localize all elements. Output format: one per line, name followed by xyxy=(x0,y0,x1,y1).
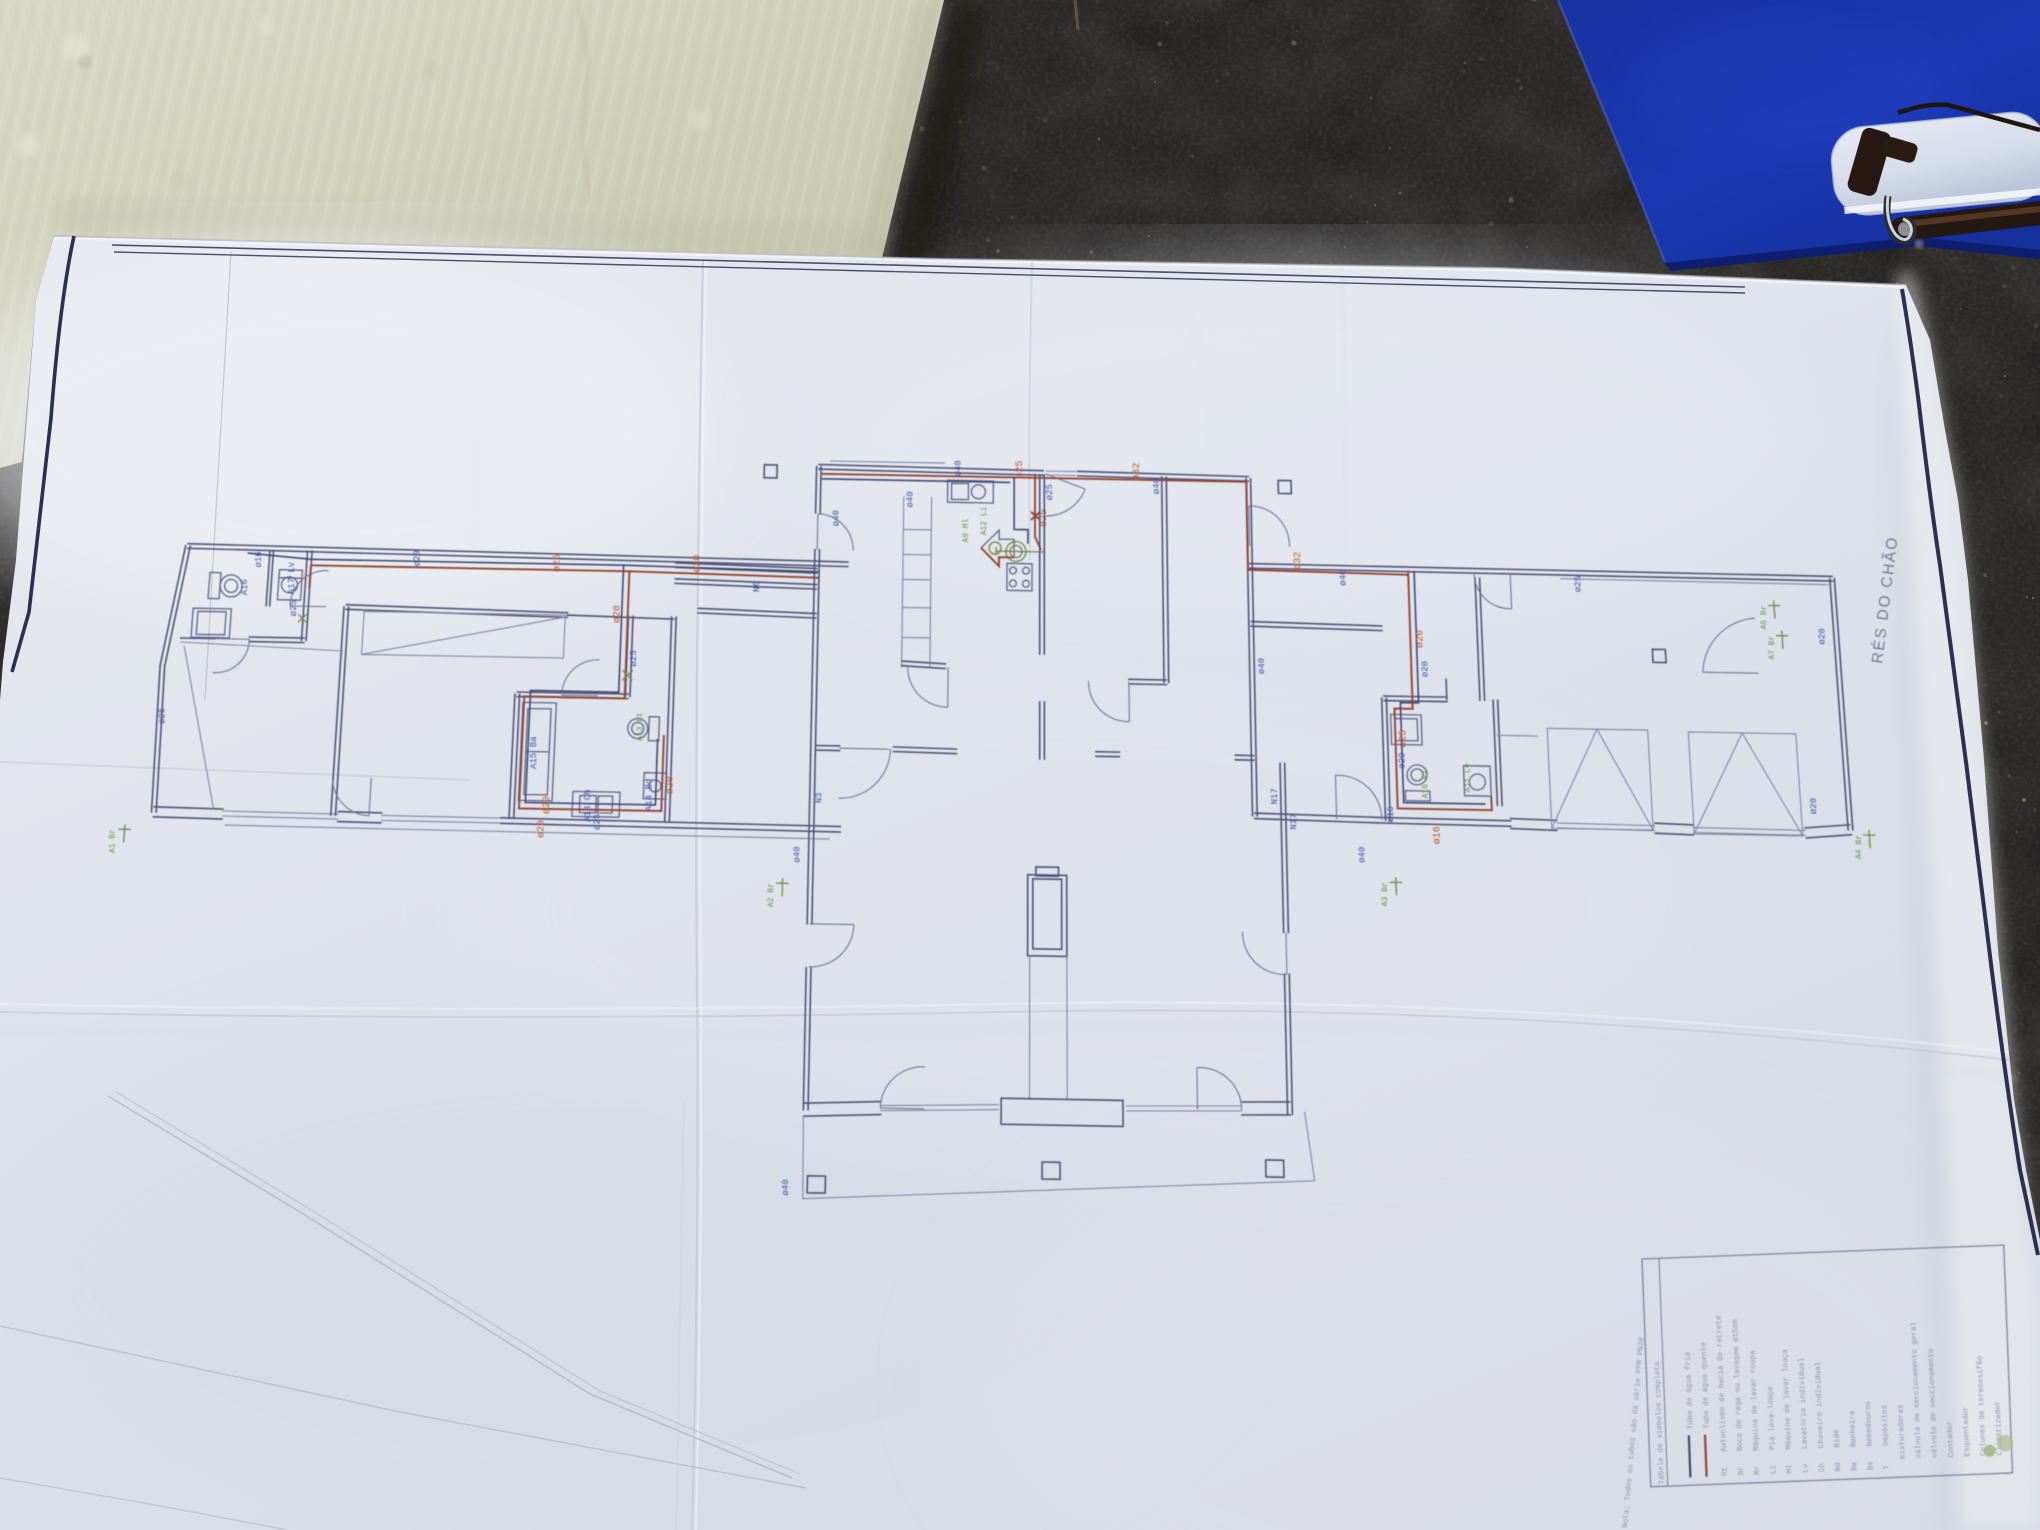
svg-text:Banheira: Banheira xyxy=(1849,1410,1858,1447)
svg-text:ø40: ø40 xyxy=(793,846,803,862)
svg-text:Ba: Ba xyxy=(1851,1461,1859,1471)
svg-text:ø40: ø40 xyxy=(1357,847,1367,863)
svg-text:A12 Li: A12 Li xyxy=(980,506,989,535)
svg-text:A2 Br: A2 Br xyxy=(767,883,776,907)
svg-text:ø40: ø40 xyxy=(832,510,842,526)
svg-text:ø25: ø25 xyxy=(158,708,168,724)
svg-text:ø20: ø20 xyxy=(613,605,624,623)
svg-text:Depósitos: Depósitos xyxy=(1881,1405,1891,1446)
svg-text:ø40: ø40 xyxy=(1257,658,1267,674)
svg-text:ø16: ø16 xyxy=(1386,806,1396,822)
svg-text:Bd: Bd xyxy=(1835,1462,1843,1471)
svg-text:N17: N17 xyxy=(1270,788,1280,804)
svg-text:A16: A16 xyxy=(240,579,250,595)
svg-text:Br: Br xyxy=(1738,1466,1746,1475)
svg-text:ø20: ø20 xyxy=(1817,628,1827,644)
svg-text:ø20: ø20 xyxy=(537,820,548,838)
svg-text:N17: N17 xyxy=(1289,813,1299,829)
svg-text:A3 Br: A3 Br xyxy=(1381,882,1390,906)
svg-text:ø25: ø25 xyxy=(553,554,564,572)
svg-text:A13 Rt: A13 Rt xyxy=(636,712,645,741)
svg-text:N3: N3 xyxy=(814,792,824,803)
svg-text:ø40: ø40 xyxy=(906,491,916,507)
svg-text:A6 Br: A6 Br xyxy=(1760,605,1769,629)
svg-text:ø40: ø40 xyxy=(1338,569,1348,585)
svg-text:ø25: ø25 xyxy=(1399,730,1410,748)
svg-text:A11 Lv: A11 Lv xyxy=(1464,763,1473,792)
svg-text:ø25: ø25 xyxy=(1574,576,1584,592)
svg-text:T: T xyxy=(1883,1465,1891,1470)
svg-text:ø25: ø25 xyxy=(1015,461,1026,479)
svg-text:A9 Ml: A9 Ml xyxy=(962,518,971,542)
svg-text:ø16: ø16 xyxy=(1433,826,1444,844)
svg-text:ø32: ø32 xyxy=(1132,463,1143,481)
svg-text:Ch: Ch xyxy=(1819,1463,1827,1472)
svg-text:N6: N6 xyxy=(752,581,762,592)
svg-text:Li: Li xyxy=(1770,1464,1778,1474)
svg-text:A1 Br: A1 Br xyxy=(109,829,118,853)
svg-text:Rt: Rt xyxy=(1721,1467,1729,1476)
svg-text:ø20: ø20 xyxy=(665,776,676,794)
svg-text:Mr: Mr xyxy=(1754,1465,1762,1474)
svg-text:Bidé: Bidé xyxy=(1833,1429,1842,1448)
svg-text:ø25: ø25 xyxy=(629,650,639,666)
svg-text:ø20: ø20 xyxy=(1415,630,1426,648)
svg-text:A7 Br: A7 Br xyxy=(1768,635,1777,659)
svg-text:A14 Bd: A14 Bd xyxy=(645,779,655,811)
svg-text:A17 Lv: A17 Lv xyxy=(287,561,297,594)
svg-text:A10 Rt: A10 Rt xyxy=(1422,770,1431,799)
svg-text:ø40: ø40 xyxy=(781,1179,791,1195)
svg-text:ø20: ø20 xyxy=(1397,752,1407,768)
svg-text:A4 Br: A4 Br xyxy=(1855,835,1864,859)
svg-text:ø20: ø20 xyxy=(693,555,704,573)
svg-text:ø40: ø40 xyxy=(1152,478,1162,494)
svg-text:ø16: ø16 xyxy=(254,551,264,567)
svg-text:ø20: ø20 xyxy=(413,550,423,566)
svg-text:ø20: ø20 xyxy=(1809,798,1819,814)
svg-text:ø25: ø25 xyxy=(1045,484,1055,500)
svg-text:A15 Ba: A15 Ba xyxy=(529,736,539,769)
svg-text:ø32: ø32 xyxy=(1293,552,1304,570)
svg-text:ø20: ø20 xyxy=(1421,661,1431,677)
svg-text:ø20: ø20 xyxy=(542,796,553,814)
svg-text:Lv: Lv xyxy=(1802,1463,1810,1473)
svg-text:Contador: Contador xyxy=(1947,1421,1956,1458)
svg-text:Bs: Bs xyxy=(1867,1461,1875,1470)
svg-text:A13 Ch: A13 Ch xyxy=(583,789,593,821)
svg-text:ø25: ø25 xyxy=(592,814,602,830)
svg-text:Ml: Ml xyxy=(1786,1464,1794,1474)
svg-text:ø25: ø25 xyxy=(289,600,299,616)
svg-text:ø40: ø40 xyxy=(954,460,964,476)
